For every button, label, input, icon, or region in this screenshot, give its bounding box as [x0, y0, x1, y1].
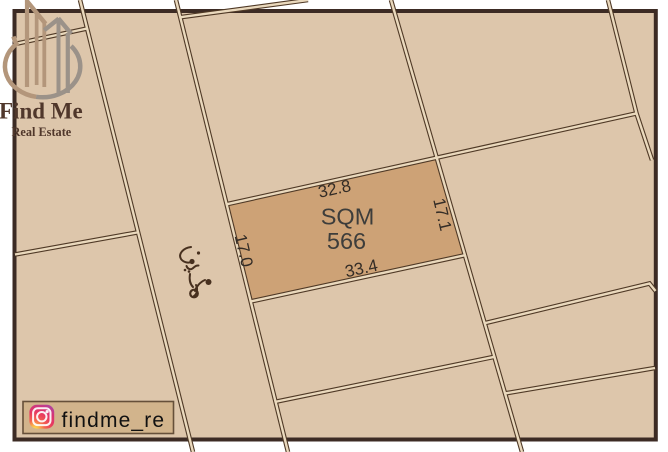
svg-text:566: 566 — [327, 228, 366, 254]
svg-text:Real Estate: Real Estate — [12, 125, 72, 139]
svg-text:SQM: SQM — [321, 204, 375, 230]
svg-text:findme_re: findme_re — [62, 409, 166, 432]
svg-text:Find Me: Find Me — [0, 99, 83, 124]
